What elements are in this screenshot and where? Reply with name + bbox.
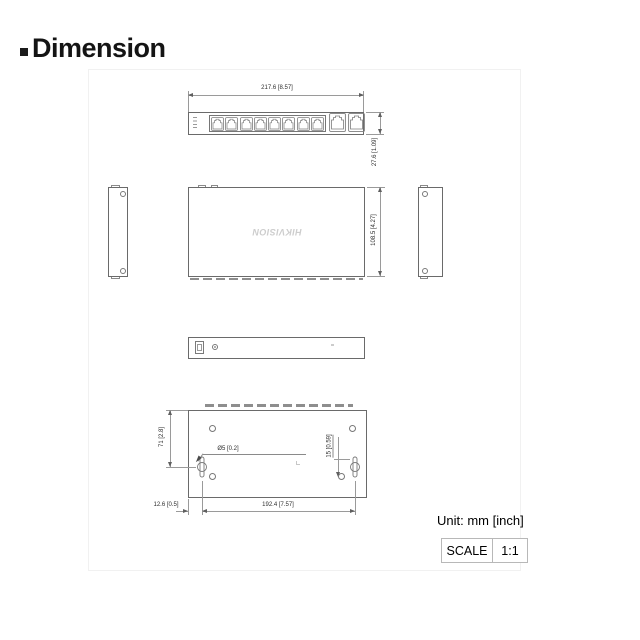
left-side-outline <box>108 187 128 277</box>
rj45-port-icon <box>225 117 238 131</box>
arrowhead-icon <box>183 509 188 513</box>
extension-line <box>367 276 385 277</box>
rj45-port-icon <box>297 117 310 131</box>
hidden-ports-dashes <box>190 278 363 280</box>
led-indicator-icon <box>193 117 197 128</box>
rj45-port-icon <box>240 117 253 131</box>
rj45-port-icon <box>211 117 224 131</box>
dimension-line <box>202 511 355 512</box>
uplink-port-icon <box>348 113 365 132</box>
extension-line <box>188 499 189 515</box>
dim-slot-offset: 15 [0.59] <box>327 434 334 457</box>
dim-top-depth: 108.5 [4.27] <box>371 214 377 246</box>
ground-screw-center <box>214 346 216 348</box>
right-side-outline <box>418 187 443 277</box>
dimension-line <box>380 187 381 276</box>
scale-label: SCALE <box>442 539 493 562</box>
rj45-port-icon <box>268 117 281 131</box>
arrowhead-icon <box>336 472 340 477</box>
dim-front-width: 217.6 [8.57] <box>261 85 293 91</box>
screw-hole-icon <box>422 268 428 274</box>
arrowhead-icon <box>359 93 364 97</box>
dim-front-height: 27.6 [1.09] <box>372 138 378 166</box>
arrowhead-icon <box>350 509 355 513</box>
hidden-ports-dashes <box>205 404 353 407</box>
arrowhead-icon <box>378 129 382 134</box>
screw-hole-icon <box>120 191 126 197</box>
dimension-line <box>338 437 339 476</box>
dimension-line <box>188 95 364 96</box>
arrowhead-icon <box>378 187 382 192</box>
rj45-port-icon <box>254 117 267 131</box>
rj45-port-icon <box>282 117 295 131</box>
title-bullet-icon <box>20 48 28 56</box>
reset-hole-mark <box>331 344 334 346</box>
dim-keyhole-span: 192.4 [7.57] <box>262 502 294 508</box>
screw-hole-icon <box>120 268 126 274</box>
dim-keyhole-offset: 12.6 [0.5] <box>153 502 178 508</box>
mount-tab-icon <box>420 277 428 279</box>
screw-hole-icon <box>422 191 428 197</box>
uplink-port-icon <box>329 113 346 132</box>
rj45-port-group <box>209 115 326 132</box>
rj45-port-icon <box>311 117 324 131</box>
arrowhead-icon <box>378 271 382 276</box>
extension-line <box>166 467 196 468</box>
hikvision-logo: HIKVISION <box>252 227 302 237</box>
keyhole-slot-icon <box>349 456 361 478</box>
arrowhead-icon <box>168 462 172 467</box>
dim-bottom-height: 71 [2.8] <box>159 427 165 447</box>
scale-table: SCALE 1:1 <box>441 538 528 563</box>
extension-line <box>367 187 385 188</box>
emboss-mark <box>296 461 300 465</box>
page-title: Dimension <box>32 33 166 64</box>
unit-note: Unit: mm [inch] <box>437 513 524 528</box>
dimension-line <box>170 410 171 467</box>
arrowhead-icon <box>202 509 207 513</box>
arrowhead-icon <box>168 410 172 415</box>
arrowhead-icon <box>378 112 382 117</box>
foot-pad-icon <box>209 473 216 480</box>
extension-line <box>366 134 384 135</box>
foot-pad-icon <box>349 425 356 432</box>
dimension-drawing-page: Dimension 217.6 [8.57] 27.6 <box>0 0 640 640</box>
dim-hole-diameter: Ø5 [0.2] <box>217 446 238 452</box>
arrowhead-icon <box>188 93 193 97</box>
mount-tab-icon <box>111 277 120 279</box>
tick-line <box>334 459 350 460</box>
extension-line <box>355 481 356 515</box>
foot-pad-icon <box>209 425 216 432</box>
dc-jack-inner-icon <box>197 344 202 351</box>
scale-value: 1:1 <box>493 539 527 562</box>
leader-shelf-line <box>203 454 306 455</box>
